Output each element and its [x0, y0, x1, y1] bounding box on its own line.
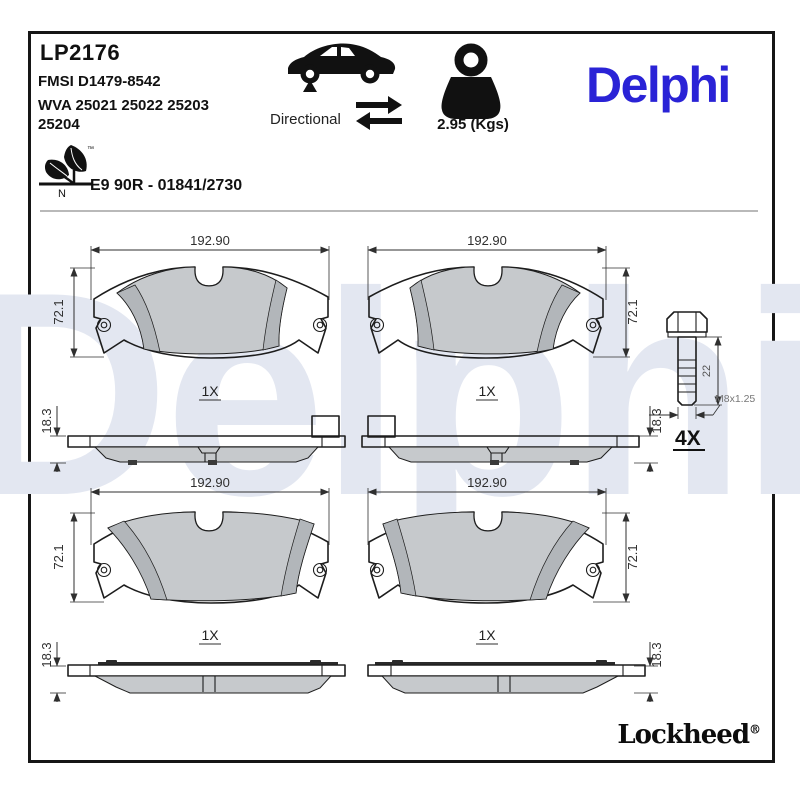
dim-height: 72.1 [625, 299, 640, 324]
dim-width: 192.90 [467, 475, 507, 490]
dim-thickness: 18.3 [649, 642, 664, 667]
lockheed-logo: Lockheed® [588, 720, 760, 750]
dim-thickness: 18.3 [39, 642, 54, 667]
bolt-qty-label: 4X [675, 427, 701, 450]
dim-height: 72.1 [51, 544, 66, 569]
dim-width: 192.90 [190, 233, 230, 248]
qty-label: 1X [201, 383, 219, 399]
bolt-length-dim: 22 [701, 365, 713, 377]
dim-width: 192.90 [190, 475, 230, 490]
lockheed-wordmark: Lockheed [617, 720, 749, 750]
dim-thickness: 18.3 [649, 408, 664, 433]
pad-side-bottom-left [68, 660, 345, 693]
bolt-thread-dim: M8x1.25 [715, 393, 755, 405]
qty-label: 1X [478, 627, 496, 643]
delphi-watermark: Delphi [0, 232, 800, 557]
qty-label: 1X [201, 627, 219, 643]
technical-drawing-canvas: Delphi 192.90 72.1 1X 18.3 19 [0, 0, 800, 800]
dim-height: 72.1 [51, 299, 66, 324]
pad-side-bottom-right [368, 660, 645, 693]
registered-symbol: ® [749, 722, 760, 736]
dim-width: 192.90 [467, 233, 507, 248]
dim-thickness: 18.3 [39, 408, 54, 433]
qty-label: 1X [478, 383, 496, 399]
dim-height: 72.1 [625, 544, 640, 569]
